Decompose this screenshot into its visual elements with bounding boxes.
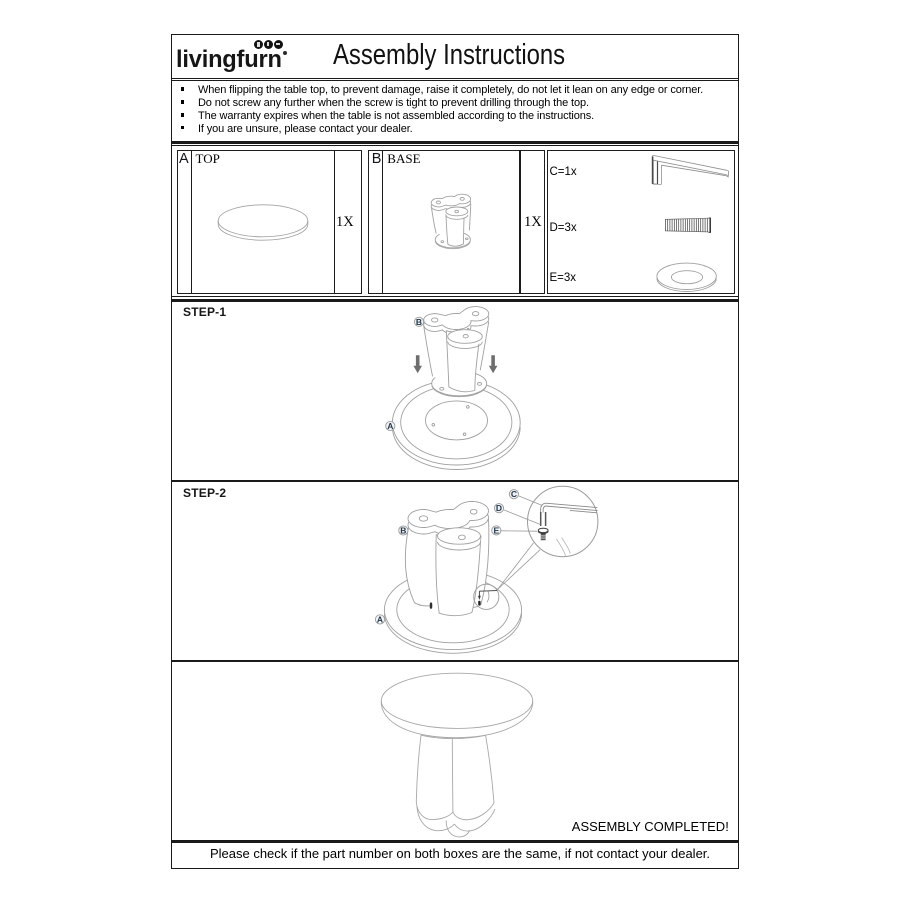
svg-text:C: C <box>511 489 517 499</box>
svg-text:A: A <box>377 614 383 624</box>
svg-text:E: E <box>493 525 499 535</box>
svg-text:B: B <box>416 317 422 327</box>
svg-text:D: D <box>496 503 502 513</box>
svg-text:B: B <box>400 526 406 536</box>
svg-text:A: A <box>387 421 393 431</box>
